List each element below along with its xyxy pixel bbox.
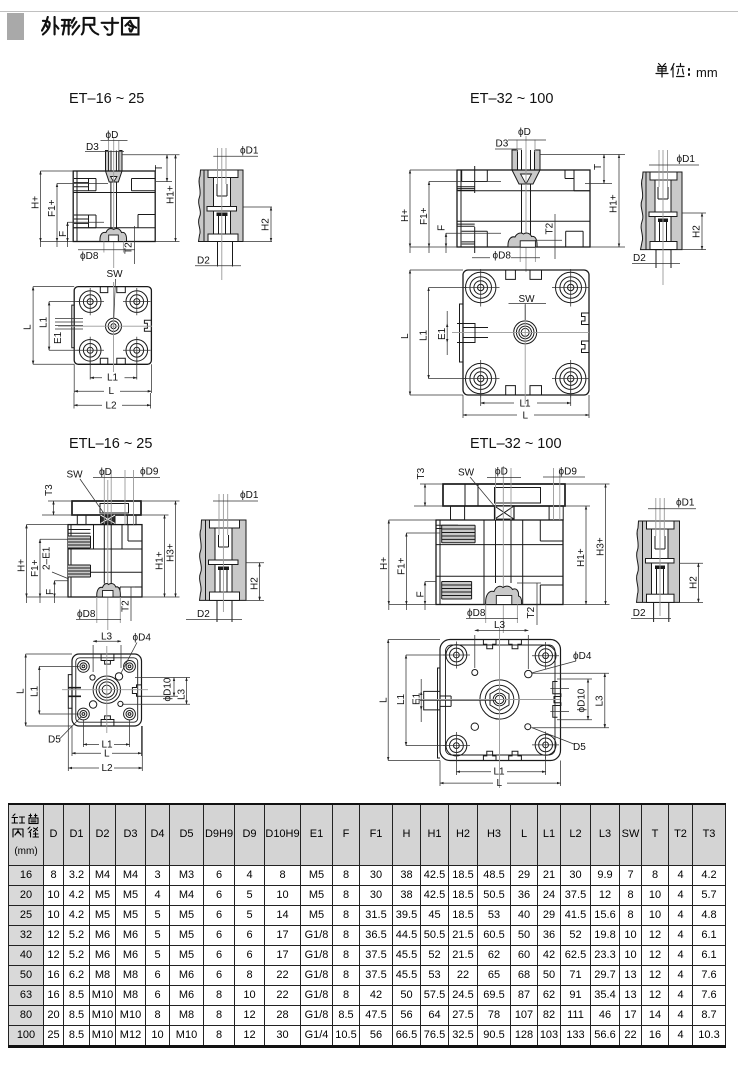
svg-text:H2: H2 (689, 576, 700, 589)
svg-text:ϕD8: ϕD8 (80, 251, 99, 262)
svg-text:T: T (154, 165, 165, 171)
svg-text:L1: L1 (396, 693, 407, 705)
svg-text:T3: T3 (44, 484, 55, 496)
svg-text:L: L (109, 386, 115, 397)
svg-text:T2: T2 (545, 222, 556, 234)
svg-text:F1+: F1+ (397, 557, 408, 575)
svg-text:L: L (16, 688, 27, 694)
svg-text:2–E1: 2–E1 (42, 546, 53, 570)
svg-text:L: L (379, 697, 390, 703)
svg-text:ϕD: ϕD (495, 467, 508, 478)
svg-text:ϕD4: ϕD4 (133, 633, 152, 644)
svg-text:L3: L3 (177, 688, 188, 700)
svg-text:F: F (58, 231, 69, 237)
svg-text:ϕD1: ϕD1 (240, 490, 259, 501)
svg-text:E1: E1 (412, 692, 423, 705)
svg-text:L1: L1 (520, 399, 532, 410)
svg-text:L: L (523, 411, 529, 422)
svg-text:ϕD: ϕD (106, 130, 119, 141)
svg-text:ϕD10: ϕD10 (163, 677, 174, 701)
svg-text:ϕD9: ϕD9 (559, 467, 578, 478)
svg-text:L3: L3 (101, 632, 113, 643)
svg-text:SW: SW (458, 468, 475, 479)
svg-text:H1+: H1+ (166, 185, 177, 204)
svg-text:L: L (23, 324, 34, 330)
svg-text:H2: H2 (692, 225, 703, 238)
svg-text:L: L (104, 749, 110, 760)
svg-text:SW: SW (67, 470, 84, 481)
svg-text:E1: E1 (53, 331, 64, 344)
svg-text:SW: SW (107, 269, 124, 280)
svg-text:ϕD10: ϕD10 (577, 688, 588, 712)
svg-text:L2: L2 (106, 401, 118, 412)
svg-text:ϕD: ϕD (518, 127, 531, 138)
svg-text:L1: L1 (419, 329, 430, 341)
svg-text:F1+: F1+ (419, 207, 430, 225)
svg-text:ϕD8: ϕD8 (493, 251, 512, 262)
svg-text:F1+: F1+ (47, 199, 58, 217)
svg-text:ϕD1: ϕD1 (677, 154, 696, 165)
svg-text:H+: H+ (17, 559, 28, 572)
svg-text:D3: D3 (496, 139, 509, 150)
svg-text:L: L (497, 778, 503, 789)
svg-text:H1+: H1+ (576, 548, 587, 567)
svg-text:T2: T2 (124, 242, 135, 254)
svg-text:L1: L1 (107, 373, 119, 384)
svg-text:D2: D2 (633, 253, 646, 264)
svg-text:T3: T3 (416, 467, 427, 479)
svg-text:T2: T2 (121, 600, 132, 612)
svg-text:D2: D2 (197, 256, 210, 267)
svg-text:D5: D5 (48, 735, 61, 746)
svg-text:F: F (437, 225, 448, 231)
svg-text:T2: T2 (526, 606, 537, 618)
svg-text:D2: D2 (633, 608, 646, 619)
svg-text:H1+: H1+ (155, 551, 166, 570)
svg-text:ϕD9: ϕD9 (140, 467, 159, 478)
svg-text:H1+: H1+ (609, 194, 620, 213)
svg-text:ϕD8: ϕD8 (77, 609, 96, 620)
svg-text:H+: H+ (379, 557, 390, 570)
svg-text:L1: L1 (30, 685, 41, 697)
svg-text:F: F (416, 591, 427, 597)
svg-text:ϕD4: ϕD4 (573, 651, 592, 662)
svg-text:ϕD1: ϕD1 (240, 146, 259, 157)
svg-text:H2: H2 (261, 218, 272, 231)
svg-text:ϕD1: ϕD1 (676, 498, 695, 509)
svg-text:D5: D5 (573, 742, 586, 753)
svg-text:D2: D2 (197, 609, 210, 620)
svg-text:L2: L2 (102, 763, 114, 774)
svg-text:D3: D3 (86, 142, 99, 153)
svg-text:ϕD: ϕD (99, 467, 112, 478)
svg-text:F: F (45, 589, 56, 595)
svg-text:H3+: H3+ (596, 537, 607, 556)
svg-text:L1: L1 (39, 316, 50, 328)
svg-text:ϕD8: ϕD8 (467, 608, 486, 619)
svg-text:T: T (593, 164, 604, 170)
svg-text:E1: E1 (437, 327, 448, 340)
svg-text:L3: L3 (494, 620, 506, 631)
svg-text:L3: L3 (595, 695, 606, 707)
svg-text:H2: H2 (250, 577, 261, 590)
svg-text:L: L (400, 333, 411, 339)
svg-text:L1: L1 (494, 767, 506, 778)
svg-text:H+: H+ (31, 196, 42, 209)
svg-text:F1+: F1+ (30, 559, 41, 577)
svg-text:H3+: H3+ (166, 543, 177, 562)
svg-text:H+: H+ (400, 209, 411, 222)
